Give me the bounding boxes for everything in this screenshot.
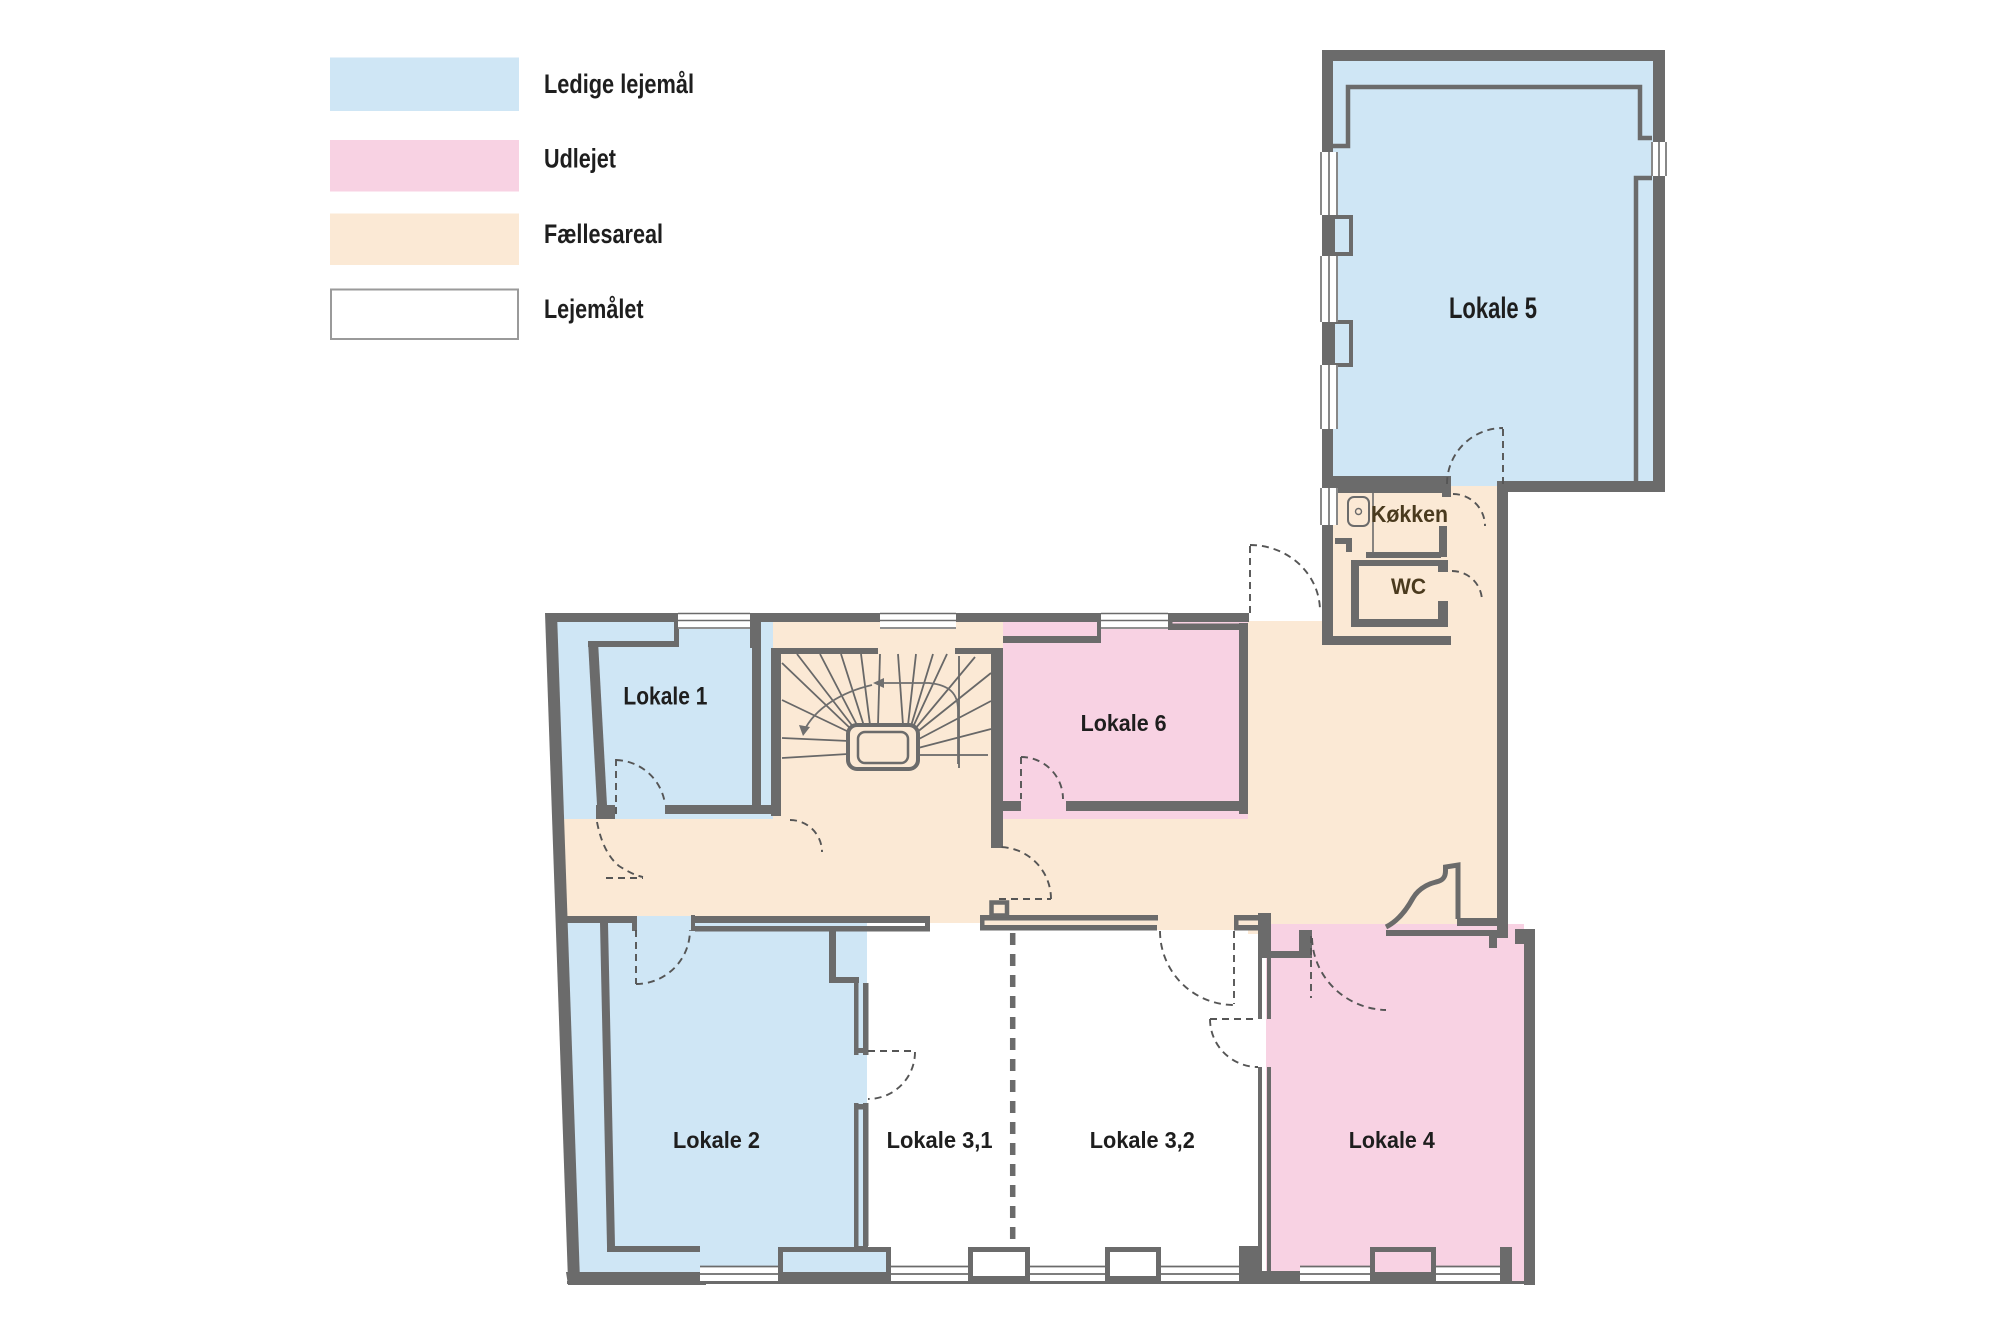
svg-text:Fællesareal: Fællesareal bbox=[544, 219, 663, 249]
svg-text:Udlejet: Udlejet bbox=[544, 144, 616, 174]
svg-text:Lokale 2: Lokale 2 bbox=[673, 1127, 760, 1153]
svg-text:Lejemålet: Lejemålet bbox=[544, 294, 644, 324]
svg-text:Lokale 3,1: Lokale 3,1 bbox=[887, 1127, 993, 1153]
svg-text:Køkken: Køkken bbox=[1371, 501, 1448, 527]
svg-text:Lokale 5: Lokale 5 bbox=[1449, 292, 1537, 325]
svg-text:Lokale 1: Lokale 1 bbox=[623, 682, 707, 710]
svg-text:Lokale 3,2: Lokale 3,2 bbox=[1090, 1127, 1195, 1153]
svg-text:Lokale 4: Lokale 4 bbox=[1349, 1127, 1435, 1153]
svg-text:Ledige lejemål: Ledige lejemål bbox=[544, 69, 694, 99]
svg-text:Lokale 6: Lokale 6 bbox=[1081, 710, 1167, 736]
svg-text:WC: WC bbox=[1391, 574, 1426, 599]
